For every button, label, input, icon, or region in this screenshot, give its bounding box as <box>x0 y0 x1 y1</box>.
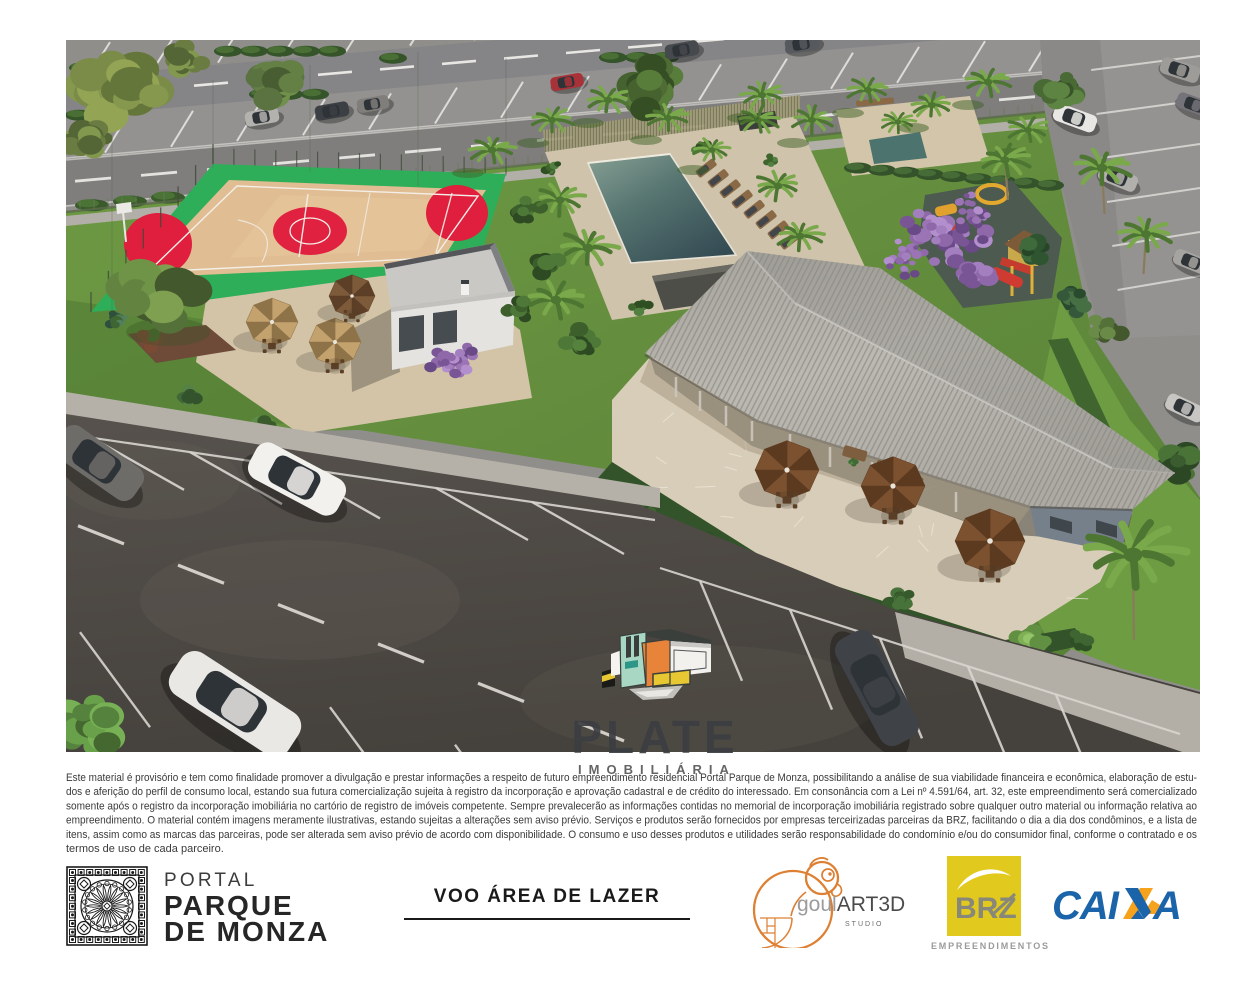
svg-text:dos e aferição do perfil de co: dos e aferição do perfil de consumo loca… <box>66 786 1197 798</box>
svg-text:somente após o registro da inc: somente após o registro da incorporação … <box>66 800 1197 812</box>
svg-text:BRZ: BRZ <box>955 892 1017 925</box>
svg-text:itens, assim como as marcas da: itens, assim como as marcas das parceira… <box>66 829 1197 841</box>
svg-text:Este material é provisório e t: Este material é provisório e tem como fi… <box>66 772 1197 784</box>
svg-text:CAI: CAI <box>1052 888 1120 928</box>
svg-text:termos de uso de cada parceiro: termos de uso de cada parceiro. <box>66 843 224 855</box>
svg-text:empreendimento. O material con: empreendimento. O material contém imagen… <box>66 815 1197 827</box>
